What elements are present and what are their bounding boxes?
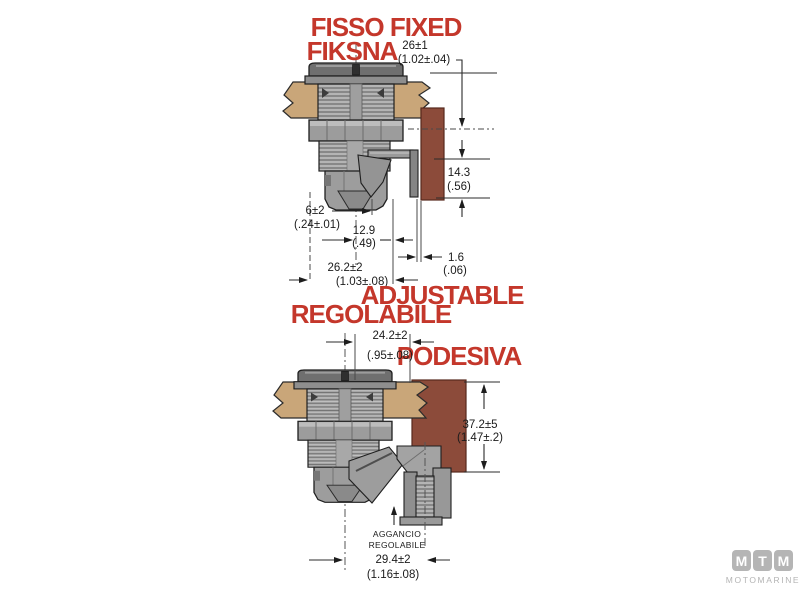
fixed-dim-bracket-in: (.56) [447,181,471,193]
adjustable-dim-bracket-mm: 37.2±5 [462,419,497,431]
adjustable-hook-note-line2: REGOLABILE [369,540,426,550]
adjustable-title-it: REGOLABILE [291,299,452,329]
fixed-dim-hole-mm: 26±1 [402,40,428,52]
fixed-dim-reach-in: (.49) [352,238,376,250]
adjustable-dim-depth-in: (1.16±.08) [367,569,420,581]
fixed-lock-drawing [305,63,407,210]
fixed-dim-hole-in: (1.02±.04) [398,54,451,66]
fixed-striker-bracket [421,108,444,200]
adjustable-hook-note-line1: AGGANCIO [373,529,421,539]
fixed-dim-clearance-in: (.24±.01) [294,219,340,231]
fixed-dim-gap-mm: 1.6 [448,252,464,264]
fixed-dim-reach-mm: 12.9 [353,225,375,237]
fixed-dim-depth-mm: 26.2±2 [327,262,362,274]
adjustable-dim-depth-mm: 29.4±2 [375,554,410,566]
logo-letter-2: T [758,553,767,569]
fixed-title-line2: FIKSNA [307,36,399,66]
diagram-canvas: FISSO FIXED FIKSNA 26±1 (1.02±.04) 14.3 … [0,0,800,600]
logo-name: MOTOMARINE [726,575,800,585]
adjustable-dim-bracket-in: (1.47±.2) [457,432,503,444]
logo-letter-1: M [736,553,748,569]
adjustable-dim-offset-in: (.95±.08) [367,350,413,362]
fixed-latch [358,150,418,197]
adjustable-diagram: ADJUSTABLE REGOLABILE PODESIVA 24.2±2 (.… [273,280,524,581]
fixed-dim-clearance-mm: 6±2 [305,205,324,217]
fixed-dim-bracket-mm: 14.3 [448,167,470,179]
adjustable-title-hr: PODESIVA [397,341,523,371]
diagram-page: FISSO FIXED FIKSNA 26±1 (1.02±.04) 14.3 … [0,0,800,600]
mtm-motomarine-logo: M T M MOTOMARINE [726,550,800,585]
fixed-dim-gap-in: (.06) [443,265,467,277]
fixed-diagram: FISSO FIXED FIKSNA 26±1 (1.02±.04) 14.3 … [283,12,497,288]
adjustable-dim-offset-mm: 24.2±2 [372,330,407,342]
logo-letter-3: M [778,553,790,569]
